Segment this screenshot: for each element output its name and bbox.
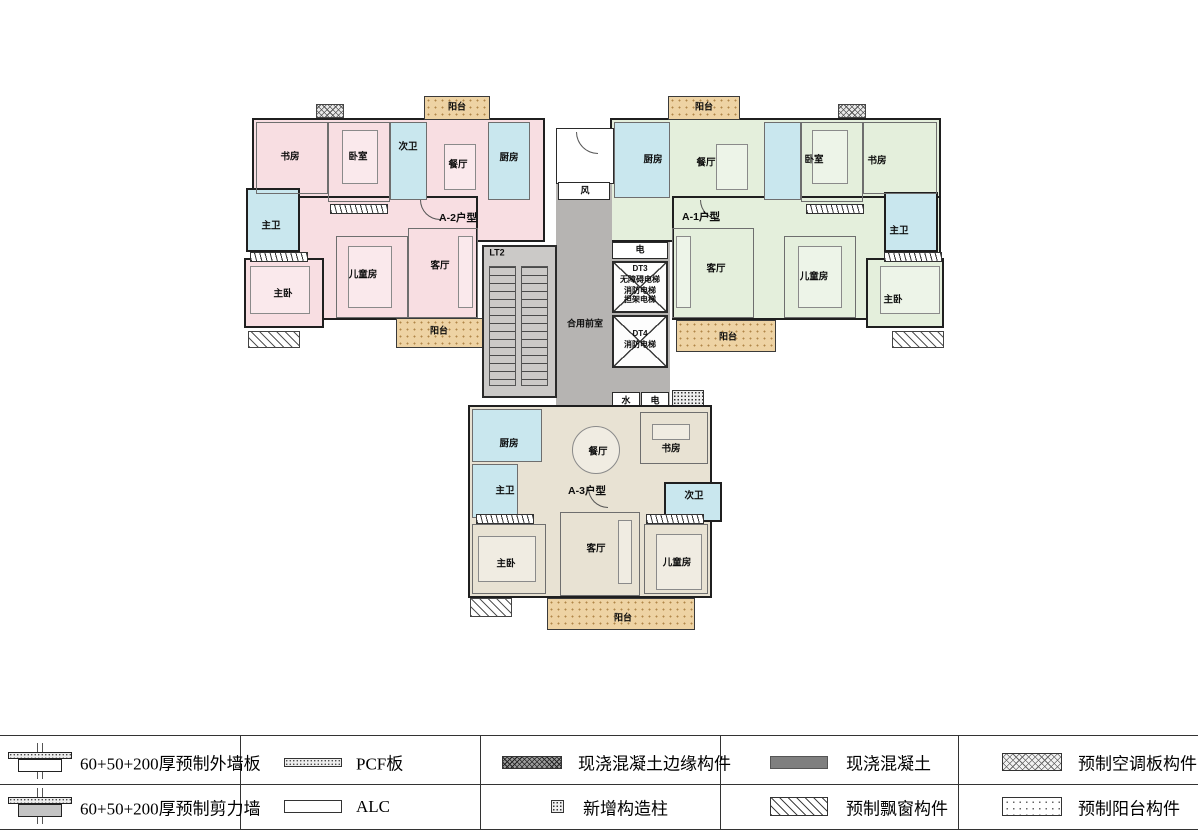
- lobby-label: 合用前室: [567, 320, 603, 329]
- unit-a3-wardrobe: [476, 514, 534, 524]
- unit-a1-ac-panel-hatch: [838, 104, 866, 118]
- balcony-label: 阳台: [430, 327, 448, 336]
- room-label: 主卧: [496, 559, 515, 569]
- stair-flight-right: [521, 266, 548, 386]
- unit-a1-wardrobe: [884, 252, 942, 262]
- legend-symbol-alc: [284, 800, 342, 813]
- elevator-id-label: DT3: [632, 265, 647, 273]
- legend-bottom-border: [0, 829, 1198, 830]
- room-label: 主卫: [495, 486, 514, 496]
- elevator-label: 消防电梯: [624, 287, 656, 295]
- unit-a3-kitchen: [472, 409, 542, 462]
- room-label: 书房: [661, 444, 680, 454]
- room-label: 厨房: [499, 153, 518, 163]
- legend-symbol-ac-panel: [1002, 753, 1062, 771]
- room-label: 书房: [867, 156, 886, 166]
- room-label: 儿童房: [349, 270, 378, 280]
- legend-symbol-cast-concrete: [770, 756, 828, 769]
- desk-icon: [652, 424, 690, 440]
- elevator-id-label: DT4: [632, 330, 647, 338]
- legend-symbol-balcony-component: [1002, 797, 1062, 816]
- balcony-label: 阳台: [448, 103, 466, 112]
- room-label: 厨房: [643, 155, 662, 165]
- room-label: 次卫: [684, 491, 703, 501]
- elevator-label: 无障碍电梯: [620, 276, 660, 284]
- water-label: 水: [621, 397, 630, 406]
- unit-a2-bath2: [390, 122, 427, 200]
- legend-label: 现浇混凝土边缘构件: [578, 750, 731, 775]
- floor-plan-canvas: 书房 卧室 次卫 餐厅 厨房 主卫 主卧 儿童房 客厅 A-2户型 阳台 阳台 …: [0, 0, 1198, 831]
- unit-type-label: A-1户型: [682, 212, 720, 223]
- room-label: 书房: [280, 152, 299, 162]
- legend-label: 现浇混凝土: [846, 750, 931, 775]
- legend-symbol-pcf-panel: [284, 758, 342, 767]
- room-label: 主卫: [889, 226, 908, 236]
- unit-a3-wardrobe-2: [646, 514, 704, 524]
- legend-symbol-new-column: [551, 800, 564, 813]
- unit-a2-ac-panel-hatch: [316, 104, 344, 118]
- legend-symbol-bay-window: [770, 797, 828, 816]
- room-label: 次卫: [398, 142, 417, 152]
- balcony-label: 阳台: [695, 103, 713, 112]
- sofa-icon: [618, 520, 632, 584]
- unit-a1-master-bath: [884, 192, 938, 252]
- legend-divider-2: [480, 735, 481, 829]
- unit-a1-wardrobe-2: [806, 204, 864, 214]
- room-label: 主卧: [273, 289, 292, 299]
- unit-a2-wardrobe: [250, 252, 308, 262]
- legend-symbol-precast-exterior-wall: [8, 743, 72, 779]
- legend-label: 新增构造柱: [583, 795, 668, 820]
- sofa-icon: [676, 236, 691, 308]
- vent-label: 风: [580, 187, 589, 196]
- room-label: 餐厅: [588, 447, 607, 457]
- unit-type-label: A-2户型: [439, 213, 477, 224]
- room-label: 卧室: [348, 152, 367, 162]
- bed-icon: [880, 266, 940, 314]
- room-label: 厨房: [499, 439, 518, 449]
- room-label: 主卫: [261, 221, 280, 231]
- sofa-icon: [458, 236, 473, 308]
- room-label: 主卧: [883, 295, 902, 305]
- legend-mid-border: [0, 784, 1198, 785]
- stair-flight-left: [489, 266, 516, 386]
- unit-a3-bay-window-hatch: [470, 598, 512, 617]
- elevator-label: 消防电梯: [624, 341, 656, 349]
- legend-label: 预制阳台构件: [1078, 795, 1180, 820]
- unit-a1-bath: [764, 122, 801, 200]
- room-label: 儿童房: [663, 558, 692, 568]
- legend-label: PCF板: [356, 750, 403, 775]
- unit-a1-bay-window-hatch: [892, 331, 944, 348]
- dining-table-icon: [716, 144, 748, 190]
- legend-top-border: [0, 735, 1198, 736]
- legend-label: 预制飘窗构件: [846, 795, 948, 820]
- room-label: 餐厅: [448, 160, 467, 170]
- legend-divider-4: [958, 735, 959, 829]
- room-label: 儿童房: [800, 272, 829, 282]
- room-label: 客厅: [706, 264, 725, 274]
- balcony-label: 阳台: [614, 614, 632, 623]
- room-label: 客厅: [430, 261, 449, 271]
- elec-label: 电: [650, 397, 659, 406]
- legend-symbol-precast-shear-wall: [8, 788, 72, 824]
- room-label: 客厅: [586, 544, 605, 554]
- unit-a2-wardrobe-2: [330, 204, 388, 214]
- legend-label: 60+50+200厚预制剪力墙: [80, 795, 261, 820]
- elec-room-label: 电: [635, 246, 644, 255]
- stair-label: LT2: [489, 249, 504, 258]
- legend-label: 预制空调板构件: [1078, 750, 1197, 775]
- core-lobby-area: [556, 182, 612, 408]
- balcony-label: 阳台: [719, 333, 737, 342]
- room-label: 卧室: [804, 155, 823, 165]
- room-label: 餐厅: [696, 158, 715, 168]
- unit-type-label: A-3户型: [568, 486, 606, 497]
- legend-symbol-cast-edge-component: [502, 756, 562, 769]
- legend-label: 60+50+200厚预制外墙板: [80, 750, 261, 775]
- unit-a2-bay-window-hatch: [248, 331, 300, 348]
- legend-label: ALC: [356, 797, 390, 817]
- elevator-label: 担架电梯: [624, 296, 656, 304]
